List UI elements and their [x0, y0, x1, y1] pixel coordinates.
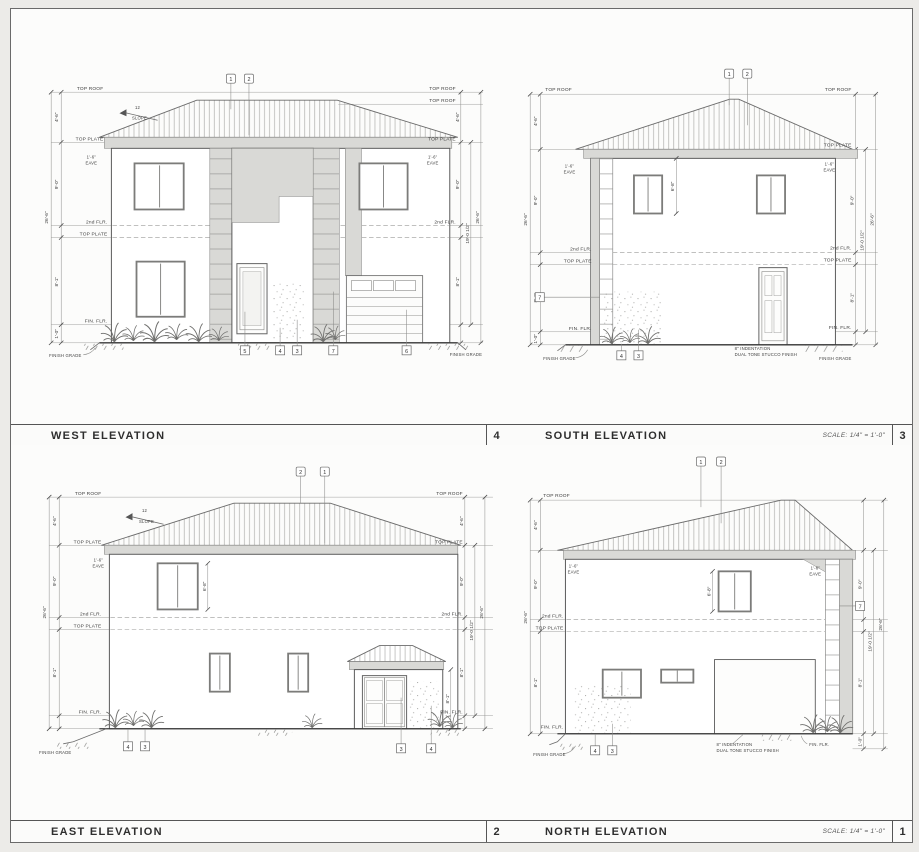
note-indentation: 8" INDENTATION: [735, 346, 771, 351]
keynote-tag: 2: [299, 470, 302, 476]
dim-porch: 8'-1": [445, 694, 451, 704]
panel-number: 3: [892, 425, 912, 446]
south-fascia: [584, 149, 858, 158]
east-window-lower-2: [288, 654, 308, 692]
label-finish-grade: FINISH GRADE: [49, 353, 81, 358]
north-window-lower-2: [661, 670, 693, 683]
south-door: [759, 268, 787, 345]
dim-roof: 4'-6": [455, 112, 461, 122]
label-second-flr: 2nd FLR.: [542, 613, 563, 619]
label-second-flr: 2nd FLR.: [86, 220, 107, 226]
label-fin-flr: FIN. FLR.: [79, 710, 102, 716]
keynote-tag: 7: [859, 604, 862, 610]
dim-lower: 8'-1": [858, 678, 864, 688]
keynote-tag: 4: [279, 349, 282, 355]
keynote-tag: 3: [637, 354, 640, 360]
north-elevation-drawing: 4'-6" 9'-0" 8'-1" 26'-6" 9'-0" 8'-1" 1'-…: [505, 445, 912, 820]
label-second-flr: 2nd FLR.: [830, 246, 851, 252]
eave-word: EAVE: [85, 160, 97, 165]
panel-number: 4: [486, 425, 506, 446]
grade-hatch: [557, 744, 583, 750]
panel-east-elevation: 4'-6" 9'-0" 8'-1" 26'-6" 4'-6" 9'-0" 8'-…: [10, 445, 507, 843]
scale-note: SCALE: 1/4" = 1'-0": [823, 828, 885, 835]
dim-story: 9'-0": [858, 579, 864, 589]
north-drawing-area: 4'-6" 9'-0" 8'-1" 26'-6" 9'-0" 8'-1" 1'-…: [505, 445, 912, 820]
slope-rise-label: 12: [135, 105, 141, 110]
keynote-tag: 4: [126, 745, 129, 751]
dim-floors-total: 19'-0 1/2": [868, 631, 874, 652]
label-finish-grade: FINISH GRADE: [543, 356, 575, 361]
label-top-plate: TOP PLATE: [536, 626, 564, 632]
keynote-tag: 2: [720, 460, 723, 466]
north-labels-right: FIN. FLR.: [801, 736, 829, 747]
west-title-bar: WEST ELEVATION 4: [11, 424, 506, 446]
west-elevation-drawing: 4'-6" 9'-0" 8'-1" 1'-0" 26'-6" 4'-6" 9'-…: [11, 9, 506, 424]
note-dual-tone: DUAL TONE STUCCO FINISH: [717, 748, 779, 753]
north-stucco-indent-feature: [825, 559, 852, 733]
keynote-tag: 1: [728, 72, 731, 78]
panel-number: 1: [892, 821, 912, 842]
label-top-plate: TOP PLATE: [74, 623, 102, 629]
keynote-tag: 3: [296, 349, 299, 355]
label-top-roof: TOP ROOF: [545, 87, 572, 93]
dim-grade: 1'-0": [54, 329, 60, 339]
east-eave-dims: 1'-6" EAVE: [92, 557, 104, 568]
dim-overall: 26'-6": [523, 213, 529, 226]
dim-window: 6'-8": [202, 581, 208, 591]
label-finish-grade: FINISH GRADE: [819, 356, 851, 361]
north-garage-recess: [715, 660, 816, 734]
east-labels-left: TOP ROOF TOP PLATE 2nd FLR. TOP PLATE FI…: [39, 491, 101, 755]
dim-window: 6'-8": [670, 181, 676, 191]
dim-story: 9'-0": [52, 576, 58, 586]
dim-overall: 26'-6": [42, 606, 48, 619]
dim-overall: 26'-6": [475, 211, 481, 224]
south-window-upper-2: [757, 175, 785, 213]
dim-story: 9'-0": [850, 195, 856, 205]
note-dual-tone: DUAL TONE STUCCO FINISH: [735, 352, 797, 357]
label-fin-flr: FIN. FLR.: [85, 319, 108, 325]
eave-dim: 1'-6": [94, 557, 104, 562]
dim-overall: 26'-6": [523, 611, 529, 624]
east-dims-left: 4'-6" 9'-0" 8'-1" 26'-6": [42, 495, 61, 731]
keynote-tag: 1: [699, 460, 702, 466]
grade-hatch: [557, 346, 587, 352]
keynote-tag: 1: [229, 77, 232, 83]
label-top-roof: TOP ROOF: [77, 86, 104, 92]
keynote-tag: 7: [538, 296, 541, 302]
label-top-plate: TOP PLATE: [564, 259, 592, 265]
label-fin-flr: FIN. FLR.: [541, 725, 564, 731]
label-fin-flr: FIN. FLR.: [569, 326, 592, 332]
south-note: 8" INDENTATION DUAL TONE STUCCO FINISH: [735, 346, 797, 357]
label-fin-flr: FIN. FLR.: [829, 325, 852, 331]
eave-dim: 1'-6": [825, 161, 835, 166]
label-top-roof: TOP ROOF: [543, 493, 570, 499]
east-drawing-area: 4'-6" 9'-0" 8'-1" 26'-6" 4'-6" 9'-0" 8'-…: [11, 445, 506, 820]
panel-south-elevation: 4'-6" 9'-0" 8'-1" 1'-0" 26'-6" 9'-0" 8'-…: [505, 8, 913, 447]
dim-lower: 8'-1": [850, 293, 856, 303]
label-top-plate: TOP PLATE: [824, 142, 852, 148]
east-fascia: [104, 545, 457, 554]
dim-lower: 8'-1": [54, 277, 60, 287]
panel-title: EAST ELEVATION: [51, 826, 163, 838]
west-window-upper-left: [134, 163, 183, 209]
label-top-roof: TOP ROOF: [429, 86, 456, 92]
dim-story: 9'-0": [455, 179, 461, 189]
dim-story: 9'-0": [533, 195, 539, 205]
grade-hatch: [762, 735, 792, 741]
eave-dim: 1'-6": [569, 563, 579, 568]
north-fascia: [563, 550, 855, 559]
dim-lower: 8'-1": [455, 277, 461, 287]
dim-story: 9'-0": [459, 576, 465, 586]
label-top-roof: TOP ROOF: [429, 98, 456, 104]
dim-lower: 8'-1": [533, 678, 539, 688]
dim-roof: 4'-6": [533, 116, 539, 126]
east-window-lower-1: [210, 654, 230, 692]
keynote-tag: 3: [400, 747, 403, 753]
grade-hatch: [258, 730, 292, 736]
dim-floors-total: 19'-0 1/2": [469, 620, 475, 641]
dim-roof: 4'-6": [533, 520, 539, 530]
label-second-flr: 2nd FLR.: [570, 247, 591, 253]
dim-roof: 4'-6": [459, 516, 465, 526]
dim-grade: 1'-0": [858, 737, 864, 747]
label-top-roof: TOP ROOF: [75, 491, 102, 497]
south-drawing-area: 4'-6" 9'-0" 8'-1" 1'-0" 26'-6" 9'-0" 8'-…: [505, 9, 912, 424]
label-top-plate: TOP PLATE: [80, 232, 108, 238]
dim-overall: 26'-6": [479, 606, 485, 619]
scale-note: SCALE: 1/4" = 1'-0": [823, 432, 885, 439]
keynote-tag: 2: [746, 72, 749, 78]
dim-lower: 8'-1": [52, 668, 58, 678]
south-labels-left: TOP ROOF 2nd FLR. TOP PLATE FIN. FLR. FI…: [543, 87, 591, 361]
dim-window: 6'-8": [707, 586, 713, 596]
north-dims-right: 9'-0" 8'-1" 1'-0" 19'-0 1/2" 26'-6": [858, 498, 886, 751]
west-dims-left: 4'-6" 9'-0" 8'-1" 1'-0" 26'-6": [44, 90, 63, 345]
west-roof: [99, 100, 457, 137]
west-fascia: [104, 137, 451, 148]
slope-rise-label: 12: [142, 508, 148, 513]
north-title-bar: NORTH ELEVATION SCALE: 1/4" = 1'-0" 1: [505, 820, 912, 842]
east-slope-indicator: 12 SLOPE: [125, 508, 163, 524]
keynote-tag: 5: [243, 349, 246, 355]
north-dims-left: 4'-6" 9'-0" 8'-1" 26'-6": [523, 498, 542, 736]
label-top-plate: TOP PLATE: [824, 258, 852, 264]
south-dims-left: 4'-6" 9'-0" 8'-1" 1'-0" 26'-6": [523, 92, 542, 347]
east-roof: [101, 503, 460, 545]
grade-hatch: [429, 344, 469, 350]
dim-floors-total: 19'-0 1/2": [860, 230, 866, 251]
panel-title: SOUTH ELEVATION: [545, 430, 667, 442]
south-elevation-drawing: 4'-6" 9'-0" 8'-1" 1'-0" 26'-6" 9'-0" 8'-…: [505, 9, 912, 424]
north-window-upper: [719, 571, 751, 611]
panel-title: WEST ELEVATION: [51, 430, 165, 442]
west-labels-left: TOP ROOF TOP PLATE 2nd FLR. TOP PLATE FI…: [49, 86, 107, 358]
eave-word: EAVE: [564, 169, 576, 174]
south-roof: [576, 99, 853, 149]
dim-roof: 4'-6": [54, 112, 60, 122]
slope-word-label: SLOPE: [139, 519, 154, 524]
dim-overall: 26'-6": [44, 211, 50, 224]
west-entry-tower: [210, 148, 340, 342]
eave-dim: 1'-6": [87, 154, 97, 159]
keynote-tag: 6: [405, 349, 408, 355]
eave-word: EAVE: [568, 569, 580, 574]
grade-hatch: [81, 344, 123, 350]
keynote-tag: 7: [332, 349, 335, 355]
south-keynote-wall: 7: [535, 293, 599, 302]
eave-word: EAVE: [92, 563, 104, 568]
grade-hatch: [431, 730, 459, 736]
eave-word: EAVE: [824, 167, 836, 172]
south-window-upper-1: [634, 175, 662, 213]
west-window-lower-left: [137, 262, 185, 317]
eave-dim: 1'-6": [565, 163, 575, 168]
label-second-flr: 2nd FLR.: [441, 611, 462, 617]
label-second-flr: 2nd FLR.: [434, 220, 455, 226]
eave-dim: 1'-6": [428, 154, 438, 159]
dim-story: 9'-0": [533, 579, 539, 589]
east-title-bar: EAST ELEVATION 2: [11, 820, 506, 842]
grade-hatch: [57, 743, 89, 749]
label-second-flr: 2nd FLR.: [80, 611, 101, 617]
label-top-roof: TOP ROOF: [825, 87, 852, 93]
keynote-tag: 4: [594, 749, 597, 755]
stucco-texture: [272, 284, 305, 339]
label-finish-grade: FINISH GRADE: [533, 752, 565, 757]
label-top-plate: TOP PLATE: [76, 136, 104, 142]
keynote-tag: 4: [430, 747, 433, 753]
keynote-tag: 4: [620, 354, 623, 360]
label-fin-flr: FIN. FLR.: [440, 710, 463, 716]
label-finish-grade: FINISH GRADE: [450, 352, 482, 357]
dim-lower: 8'-1": [459, 668, 465, 678]
label-top-roof: TOP ROOF: [436, 491, 463, 497]
east-dims-right: 4'-6" 9'-0" 8'-1" 19'-0 1/2" 26'-6": [459, 495, 487, 731]
grade-step: [63, 729, 106, 744]
west-dims-right: 4'-6" 9'-0" 8'-1" 19'-0 1/2" 26'-6": [455, 90, 483, 345]
eave-word: EAVE: [427, 160, 439, 165]
grade-step: [549, 734, 565, 745]
keynote-tag: 2: [247, 77, 250, 83]
keynote-tag: 3: [611, 749, 614, 755]
label-top-plate: TOP PLATE: [435, 539, 463, 545]
dim-roof: 4'-6": [52, 516, 58, 526]
stucco-texture: [574, 686, 631, 734]
dim-story: 9'-0": [54, 179, 60, 189]
keynote-tag: 3: [144, 745, 147, 751]
label-finish-grade: FINISH GRADE: [39, 750, 71, 755]
west-drawing-area: 4'-6" 9'-0" 8'-1" 1'-0" 26'-6" 4'-6" 9'-…: [11, 9, 506, 424]
north-keynotes-top: 1 2: [696, 457, 725, 523]
panel-north-elevation: 4'-6" 9'-0" 8'-1" 26'-6" 9'-0" 8'-1" 1'-…: [505, 445, 913, 843]
north-roof: [557, 500, 852, 550]
dim-overall: 26'-6": [870, 213, 876, 226]
south-title-bar: SOUTH ELEVATION SCALE: 1/4" = 1'-0" 3: [505, 424, 912, 446]
label-top-plate: TOP PLATE: [428, 136, 456, 142]
slope-word-label: SLOPE: [132, 115, 147, 120]
east-window-upper: [158, 563, 198, 609]
south-dims-right: 9'-0" 8'-1" 19'-0 1/2" 26'-6": [850, 92, 878, 347]
dim-floors-total: 19'-0 1/2": [465, 223, 471, 244]
panel-number: 2: [486, 821, 506, 842]
dim-overall: 26'-6": [878, 618, 884, 631]
east-elevation-drawing: 4'-6" 9'-0" 8'-1" 26'-6" 4'-6" 9'-0" 8'-…: [11, 445, 506, 820]
grade-hatch: [802, 346, 842, 352]
keynote-tag: 1: [323, 470, 326, 476]
label-top-plate: TOP PLATE: [74, 539, 102, 545]
eave-dim: 1'-6": [811, 565, 821, 570]
drawing-sheet: 4'-6" 9'-0" 8'-1" 1'-0" 26'-6" 4'-6" 9'-…: [0, 0, 919, 852]
dim-grade: 1'-0": [533, 334, 539, 344]
panel-west-elevation: 4'-6" 9'-0" 8'-1" 1'-0" 26'-6" 4'-6" 9'-…: [10, 8, 507, 447]
panel-title: NORTH ELEVATION: [545, 826, 668, 838]
eave-word: EAVE: [809, 571, 821, 576]
label-fin-flr: FIN. FLR.: [809, 742, 829, 747]
